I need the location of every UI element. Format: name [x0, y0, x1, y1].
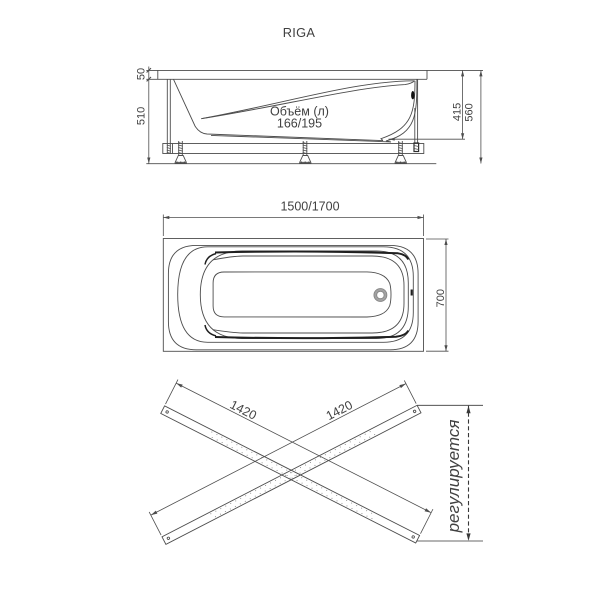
svg-text:50: 50: [135, 68, 147, 80]
svg-text:510: 510: [136, 107, 148, 125]
svg-text:регулируется: регулируется: [444, 420, 463, 534]
svg-text:415: 415: [451, 103, 463, 121]
svg-text:RIGA: RIGA: [283, 25, 316, 40]
svg-text:166/195: 166/195: [277, 116, 322, 130]
svg-text:560: 560: [463, 103, 475, 121]
svg-text:700: 700: [435, 289, 447, 307]
svg-text:1500/1700: 1500/1700: [280, 200, 339, 214]
